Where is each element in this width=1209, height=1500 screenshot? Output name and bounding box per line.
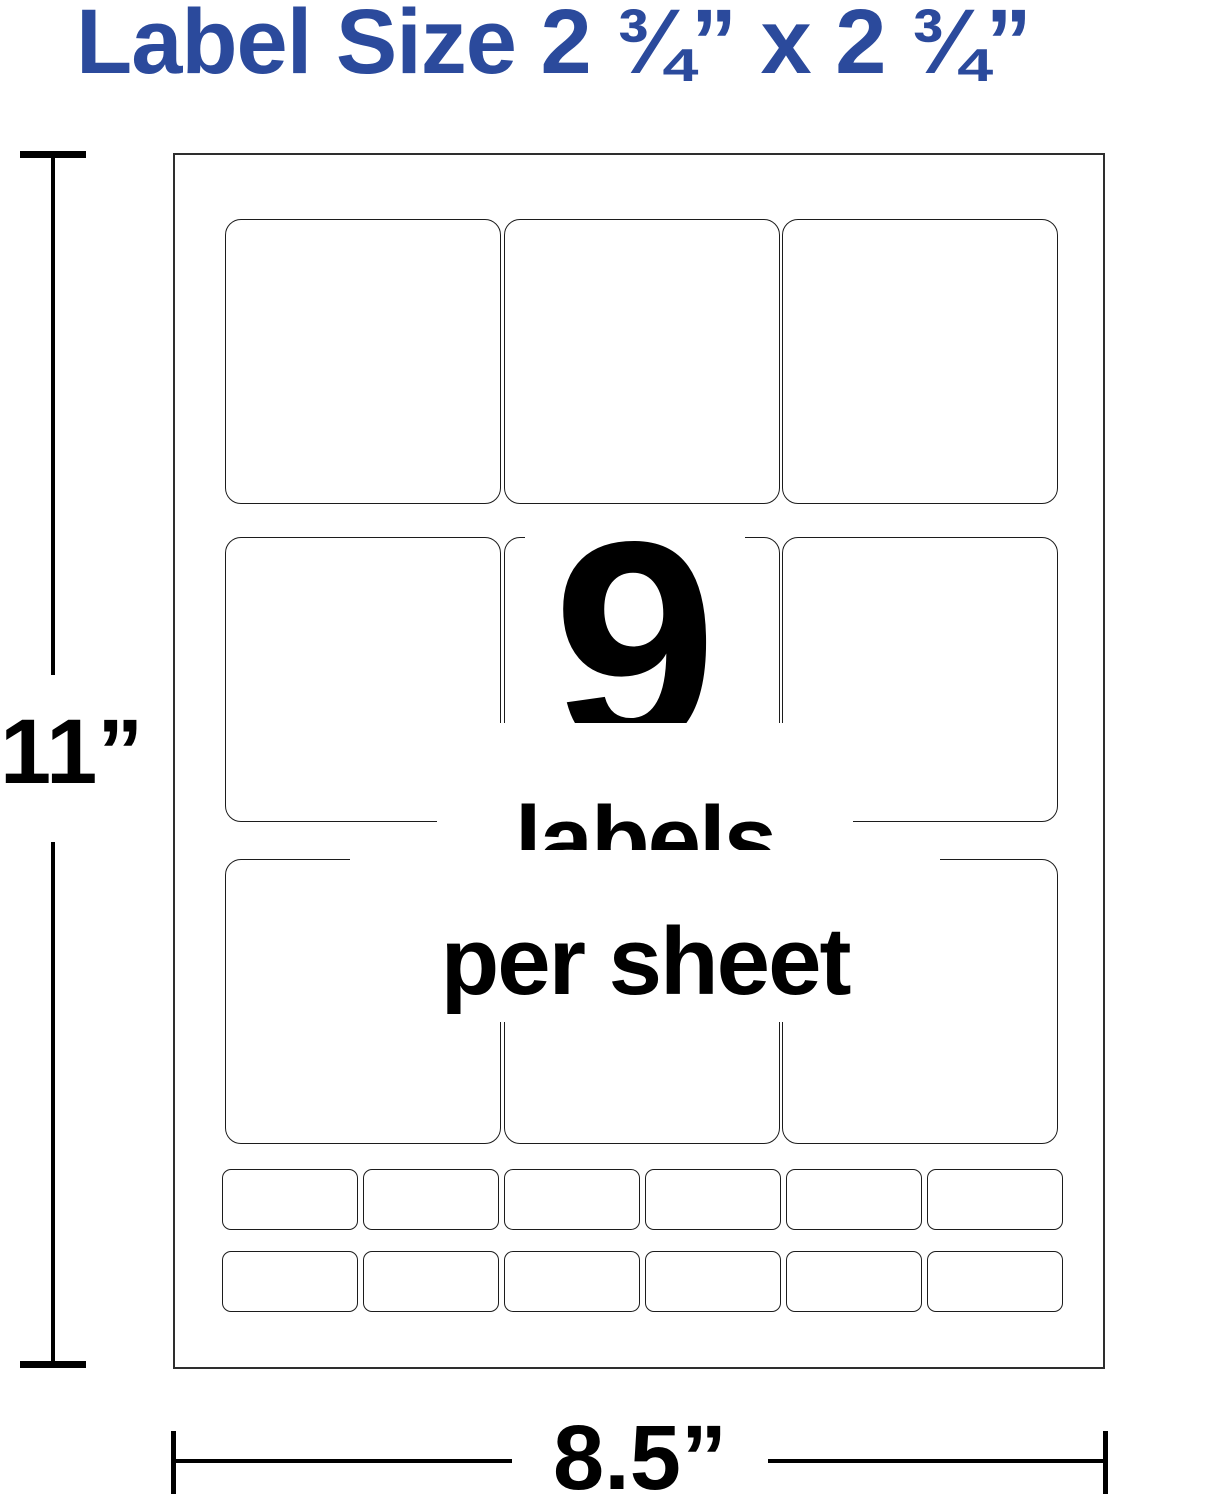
height-dimension-line-lower [51,842,55,1366]
small-label-cell [645,1169,781,1230]
square-label-cell [782,219,1058,504]
small-label-cell [504,1169,640,1230]
width-dimension-label: 8.5” [520,1412,760,1500]
square-label-cell [225,219,501,504]
small-label-cell [504,1251,640,1312]
small-label-cell [363,1169,499,1230]
small-label-cell [363,1251,499,1312]
height-dimension-bottom-cap [20,1361,86,1368]
square-label-cell [504,219,780,504]
small-label-cell [786,1251,922,1312]
page-title: Label Size 2 ¾” x 2 ¾” [76,0,1031,95]
small-label-cell [222,1169,358,1230]
width-dimension-line-right [768,1459,1107,1463]
small-label-cell [927,1251,1063,1312]
width-dimension-right-cap [1103,1431,1108,1494]
small-label-cell [645,1251,781,1312]
per-sheet-words: per sheet [350,850,940,1022]
label-sheet-diagram: Label Size 2 ¾” x 2 ¾” 11” 9 labels per … [0,0,1209,1500]
small-label-cell [927,1169,1063,1230]
height-dimension-line-upper [51,155,55,675]
small-label-cell [786,1169,922,1230]
height-dimension-label: 11” [0,706,150,798]
width-dimension-line-left [173,1459,512,1463]
small-label-cell [222,1251,358,1312]
